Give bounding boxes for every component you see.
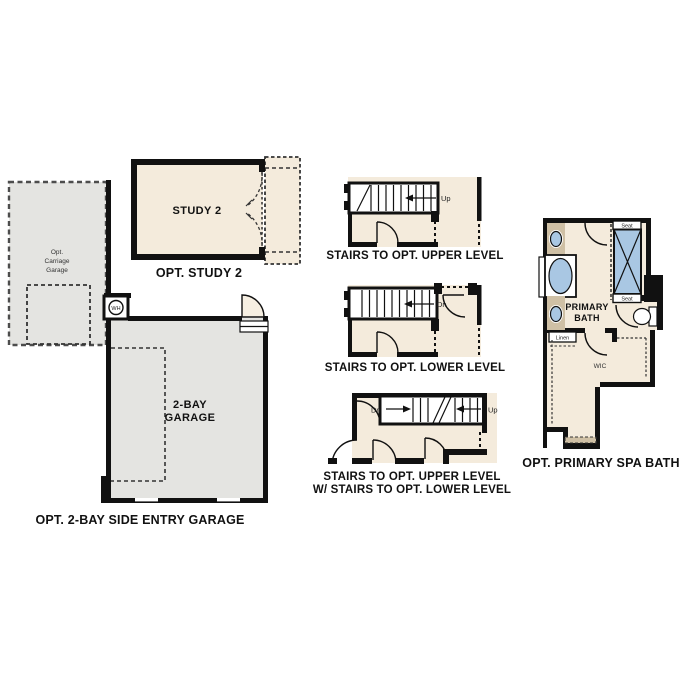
toilet-bowl: [634, 309, 651, 325]
water-heater-label: WH: [111, 306, 120, 312]
floorplan-page: Opt. Carriage Garage WH 2-BAY GARAGE OPT…: [0, 0, 687, 687]
shower-seat-bottom-label: Seat: [621, 297, 633, 303]
wic-entry-strip: [565, 437, 596, 443]
study-right-wall-top: [259, 159, 265, 172]
stairs-upper-section: Up STAIRS TO OPT. UPPER LEVEL: [326, 177, 503, 262]
stairs-upper-dir-label: Up: [441, 194, 451, 203]
tub-ledge: [539, 257, 545, 297]
stairs-combo-caption-1: STAIRS TO OPT. UPPER LEVEL: [323, 471, 500, 483]
tub: [549, 259, 572, 294]
stairs-lower-lower-left-wall: [348, 319, 352, 357]
stairs-lower-corner-wall-2: [468, 283, 477, 295]
stairs-combo-stairbox: [380, 396, 485, 424]
stairs-upper-lower-left-wall: [348, 213, 352, 247]
garage-entry-door: [242, 295, 264, 317]
study-caption: OPT. STUDY 2: [156, 266, 242, 280]
garage-caption: OPT. 2-BAY SIDE ENTRY GARAGE: [35, 513, 244, 527]
study-room-label: STUDY 2: [172, 205, 221, 217]
stairs-lower-right-wall: [477, 285, 482, 325]
stairs-upper-left-tick-1: [344, 184, 349, 193]
garage-bottom-opening-1: [135, 498, 158, 501]
stairs-upper-left-tick-2: [344, 201, 349, 210]
study-top-wall: [131, 159, 265, 165]
wic-right-wall-upper: [650, 330, 655, 386]
wic-step-wall: [600, 382, 655, 387]
stairs-combo-left-wall: [352, 393, 357, 440]
bath-caption: OPT. PRIMARY SPA BATH: [522, 456, 679, 470]
stairs-lower-corner-wall-1: [434, 283, 442, 294]
study-extension-dashed: [265, 157, 300, 264]
stairs-combo-up-label: Up: [488, 406, 498, 415]
stairs-upper-caption: STAIRS TO OPT. UPPER LEVEL: [326, 250, 503, 262]
linen-label: Linen: [556, 336, 569, 342]
stairs-combo-right-wall: [482, 393, 487, 433]
stairs-lower-bottom-wall-left: [348, 352, 377, 357]
stairs-combo-section: Dn Up STAIRS TO OPT. UPPER LEVEL W/ STAI…: [313, 393, 511, 496]
stairs-lower-left-tick-1: [344, 291, 349, 300]
garage-right-wall: [263, 316, 268, 503]
garage-room-label-1: 2-BAY: [173, 399, 207, 411]
garage-top-wall: [128, 316, 242, 321]
stairs-upper-bottom-wall-left: [348, 242, 377, 247]
study-left-wall: [131, 159, 137, 260]
stairs-combo-bottom-wall-1: [352, 458, 372, 464]
toilet-right-wall: [657, 295, 663, 330]
stairs-lower-left-tick-2: [344, 308, 349, 317]
stairs-upper-corner-wall: [431, 211, 439, 222]
stairs-combo-bottom-wall-2: [395, 458, 424, 464]
sink-bottom: [551, 307, 562, 322]
bath-right-wall-upper: [646, 218, 651, 278]
garage-room-label-2: GARAGE: [165, 412, 216, 424]
bath-section: Seat Seat Linen PRIMARY BATH WIC OPT. PR…: [522, 218, 679, 470]
stairs-combo-door-stop-wall: [328, 458, 337, 464]
floorplan-canvas: Opt. Carriage Garage WH 2-BAY GARAGE OPT…: [0, 0, 687, 687]
carriage-garage-label-2: Carriage: [45, 258, 70, 265]
garage-bottom-wall: [103, 498, 268, 503]
stairs-upper-right-wall: [477, 177, 482, 221]
stairs-combo-caption-2: W/ STAIRS TO OPT. LOWER LEVEL: [313, 484, 511, 496]
garage-bottom-opening-2: [217, 498, 240, 501]
stairs-lower-bottom-wall-right: [397, 352, 438, 357]
study-right-wall-bottom: [259, 247, 265, 260]
bath-room-label-2: BATH: [574, 313, 600, 323]
stairs-upper-bottom-wall-right: [397, 242, 438, 247]
sink-top: [551, 232, 562, 247]
wic-bottom-wall: [563, 443, 600, 449]
carriage-garage-label-3: Garage: [46, 267, 68, 274]
stairs-lower-caption: STAIRS TO OPT. LOWER LEVEL: [325, 362, 505, 374]
stairs-combo-bottom-wall-3: [446, 449, 487, 455]
bath-room-label-1: PRIMARY: [565, 302, 608, 312]
carriage-garage-label-1: Opt.: [51, 249, 63, 256]
study-bottom-wall: [131, 254, 265, 260]
study-section: STUDY 2 OPT. STUDY 2: [131, 157, 300, 280]
wic-label: WIC: [594, 363, 607, 370]
garage-left-wall: [106, 180, 111, 503]
wic-bottom-wall-left: [543, 427, 568, 432]
bath-bottom-wall-step: [612, 328, 617, 342]
stairs-lower-section: Dn STAIRS TO OPT. LOWER LEVEL: [325, 283, 505, 374]
stairs-lower-corner-wall-3: [431, 319, 439, 331]
